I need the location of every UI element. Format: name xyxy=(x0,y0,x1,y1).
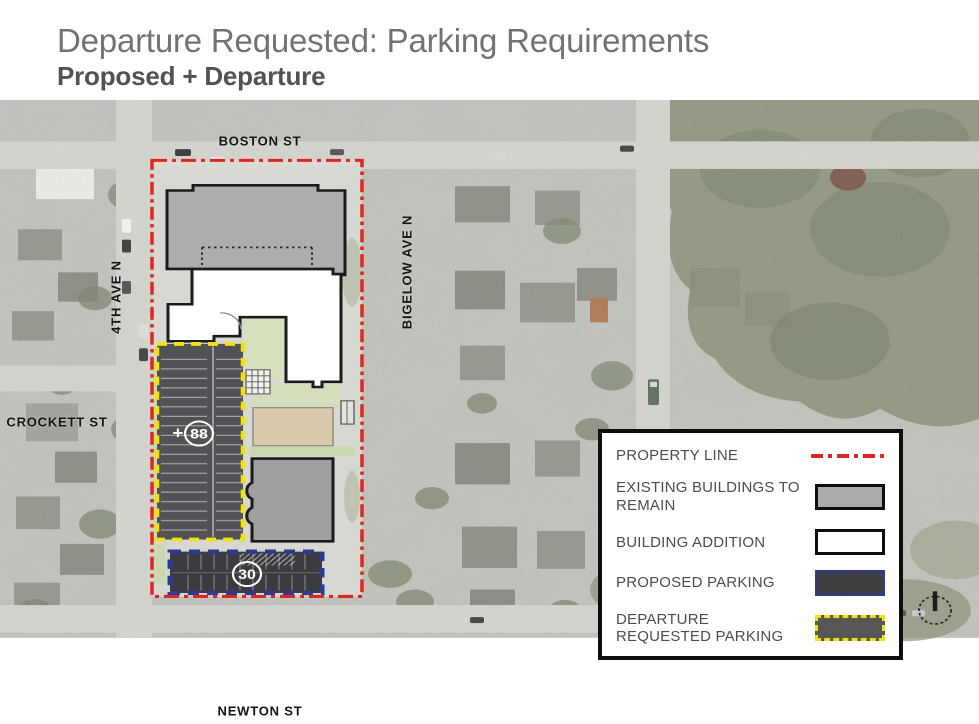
legend-item-departure-parking: DEPARTURE REQUESTED PARKING xyxy=(616,611,885,646)
street-label-boston: BOSTON ST xyxy=(219,134,302,149)
legend-item-property-line: PROPERTY LINE xyxy=(616,447,885,465)
legend-label: PROPOSED PARKING xyxy=(616,574,804,592)
page-subtitle: Proposed + Departure xyxy=(57,61,325,92)
legend-label: EXISTING BUILDINGS TO REMAIN xyxy=(616,479,804,514)
departure-parking-garage: + 88 xyxy=(157,344,243,540)
existing-building-south xyxy=(247,459,333,542)
proposed-parking-lot: 30 xyxy=(170,552,322,593)
small-structure xyxy=(341,401,354,424)
legend-item-proposed-parking: PROPOSED PARKING xyxy=(616,570,885,596)
legend-label: BUILDING ADDITION xyxy=(616,534,804,552)
legend-label: PROPERTY LINE xyxy=(616,447,804,465)
svg-text:+: + xyxy=(172,424,183,442)
legend-item-existing-buildings: EXISTING BUILDINGS TO REMAIN xyxy=(616,479,885,514)
svg-text:30: 30 xyxy=(238,567,256,583)
building-addition-swatch xyxy=(815,529,885,555)
trellis-grid xyxy=(246,370,270,394)
street-label-fourth-ave: 4TH AVE N xyxy=(109,260,124,334)
svg-text:88: 88 xyxy=(190,427,208,443)
street-label-crockett: CROCKETT ST xyxy=(6,415,107,430)
legend-label: DEPARTURE REQUESTED PARKING xyxy=(616,611,804,646)
legend-item-building-addition: BUILDING ADDITION xyxy=(616,529,885,555)
existing-building-swatch xyxy=(815,484,885,510)
departure-parking-swatch xyxy=(815,615,885,641)
street-label-bigelow: BIGELOW AVE N xyxy=(400,215,415,329)
accessory-building xyxy=(253,408,333,446)
page-title: Departure Requested: Parking Requirement… xyxy=(57,22,709,60)
proposed-parking-swatch xyxy=(815,570,885,596)
legend: PROPERTY LINE EXISTING BUILDINGS TO REMA… xyxy=(598,429,903,660)
existing-building-north xyxy=(167,185,345,274)
slide: Departure Requested: Parking Requirement… xyxy=(0,0,979,724)
site-plan: + 88 30 xyxy=(152,160,362,596)
property-line-swatch xyxy=(811,454,885,458)
street-label-newton: NEWTON ST xyxy=(218,704,303,719)
